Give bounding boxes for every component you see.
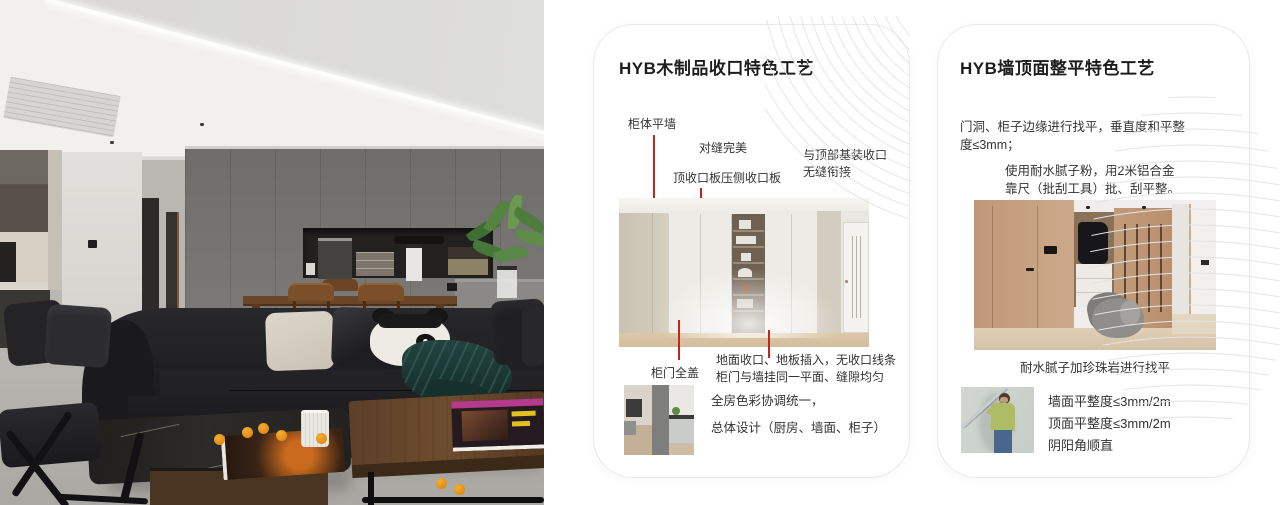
light-switch — [88, 240, 97, 248]
cup-rack — [356, 252, 394, 276]
ceiling-spotlight — [110, 141, 114, 144]
plant-vase — [497, 266, 517, 298]
wall-switch — [1201, 260, 1209, 265]
handle-groove — [1148, 224, 1150, 312]
wood-floor-far — [1172, 314, 1216, 334]
paragraph-leveling: 门洞、柜子边缘进行找平，垂直度和平整 度≤3mm； — [960, 118, 1185, 154]
orange-fruit — [276, 430, 287, 441]
beige-pillow — [265, 311, 335, 371]
thumb-kitchen-floor — [669, 443, 694, 455]
ceiling-spotlight — [1086, 206, 1090, 209]
handle-groove — [1136, 224, 1138, 312]
bullet-corners-straight: 阴阳角顺直 — [1048, 437, 1113, 455]
card-wood-finishing: HYB木制品收口特色工艺 柜体平墙 对缝完美 顶收口板压侧收口板 与顶部基装收口… — [593, 24, 910, 478]
render-wall-seam — [652, 212, 653, 335]
magazine-title-text — [512, 421, 530, 427]
orange-fruit — [436, 478, 447, 489]
magazine-title-text — [512, 411, 536, 417]
hanging-clothes — [1078, 222, 1108, 264]
bullet-wall-flatness: 墙面平整度≤3mm/2m — [1048, 393, 1171, 411]
intercom-panel — [1044, 246, 1057, 254]
living-room-photo — [0, 0, 544, 505]
worker-photo — [961, 387, 1034, 453]
summary-line-2: 总体设计（厨房、墙面、柜子） — [711, 419, 886, 437]
thumb-sofa — [624, 421, 636, 435]
orange-fruit — [316, 433, 327, 444]
drawer-line — [1076, 278, 1112, 279]
dining-chair — [288, 283, 334, 301]
bean-bag-highlight — [1120, 300, 1140, 326]
wall-socket — [447, 283, 457, 291]
annotation-cabinet-flush-wall: 柜体平墙 — [628, 116, 676, 133]
annotation-line — [678, 320, 680, 360]
annotation-ceiling-joint: 与顶部基装收口 无缝衔接 — [803, 147, 887, 181]
flush-wood-door — [992, 206, 1038, 336]
handle-groove — [1160, 224, 1162, 312]
bullet-ceiling-flatness: 顶面平整度≤3mm/2m — [1048, 415, 1171, 433]
shelf — [733, 246, 764, 248]
photo-caption: 耐水腻子加珍珠岩进行找平 — [974, 359, 1216, 377]
small-cup — [306, 263, 315, 275]
paragraph-text: 度≤3mm； — [960, 138, 1020, 152]
magazine-cover-art — [461, 410, 508, 442]
annotation-full-cover-door: 柜门全盖 — [651, 365, 699, 382]
espresso-machine — [318, 238, 352, 279]
interior-thumbnail — [624, 385, 694, 455]
table-metal-frame — [362, 497, 544, 503]
wardrobe-render-image — [619, 198, 869, 347]
paragraph-text: 门洞、柜子边缘进行找平，垂直度和平整 — [960, 120, 1185, 134]
worker-jeans — [994, 430, 1012, 453]
door-line — [852, 236, 853, 318]
orange-fruit — [454, 484, 465, 495]
dining-chair — [358, 283, 404, 301]
panda-band — [378, 314, 442, 328]
paragraph-putty: 使用耐水腻子粉，用2米铝合金 靠尺（批刮工具）批、刮平整。 — [1005, 162, 1180, 198]
paragraph-text: 使用耐水腻子粉，用2米铝合金 — [1005, 164, 1174, 178]
door-handle — [1026, 268, 1034, 271]
annotation-top-trim: 顶收口板压侧收口板 — [673, 170, 781, 187]
thumb-tv — [626, 399, 642, 417]
annotation-text: 柜门与墙挂同一平面、缝隙均匀 — [716, 370, 884, 384]
annotation-text: 无缝衔接 — [803, 165, 851, 179]
wall-top-light-gap — [185, 146, 544, 149]
ceiling-spotlight — [1142, 206, 1146, 209]
orange-fruit — [214, 434, 225, 445]
thumb-plant — [672, 407, 680, 415]
orange-fruit — [242, 427, 253, 438]
shelf — [733, 230, 764, 232]
paragraph-text: 靠尺（批刮工具）批、刮平整。 — [1005, 182, 1180, 196]
door-line — [860, 236, 861, 318]
magazine — [451, 398, 544, 451]
thumb-gray-cabinet — [652, 385, 669, 455]
dining-table — [243, 296, 457, 306]
open-door — [1172, 204, 1191, 318]
card2-title: HYB墙顶面整平特色工艺 — [960, 54, 1155, 79]
kitchen-upper-cabinet — [0, 150, 48, 234]
annotation-floor-joint: 地面收口、地板插入，无收口线条 柜门与墙挂同一平面、缝隙均匀 — [716, 352, 896, 386]
shelf-decor — [741, 253, 751, 261]
annotation-perfect-seam: 对缝完美 — [699, 140, 747, 157]
shelf-decor — [739, 220, 751, 229]
shelf-decor — [736, 236, 756, 244]
capsule-coffee-machine — [406, 242, 422, 281]
orange-fruit — [258, 423, 269, 434]
niche-wall-bar — [394, 236, 444, 244]
shelf — [733, 262, 764, 264]
card1-title: HYB木制品收口特色工艺 — [619, 54, 814, 79]
door-handle — [845, 280, 848, 283]
thumb-kitchen-cabinet — [669, 419, 694, 443]
kitchen-side-panel — [48, 150, 62, 290]
annotation-text: 与顶部基装收口 — [803, 148, 887, 162]
door-line — [856, 236, 857, 318]
ceiling-spotlight — [200, 123, 204, 126]
black-pillow — [44, 304, 112, 368]
black-pillow — [522, 306, 544, 366]
annotation-text: 地面收口、地板插入，无收口线条 — [716, 353, 896, 367]
card-wall-leveling: HYB墙顶面整平特色工艺 门洞、柜子边缘进行找平，垂直度和平整 度≤3mm； 使… — [937, 24, 1250, 478]
page: HYB木制品收口特色工艺 柜体平墙 对缝完美 顶收口板压侧收口板 与顶部基装收口… — [0, 0, 1280, 505]
light-reflection — [659, 268, 839, 338]
summary-line-1: 全房色彩协调统一， — [711, 392, 824, 410]
hallway-photo — [974, 200, 1216, 350]
